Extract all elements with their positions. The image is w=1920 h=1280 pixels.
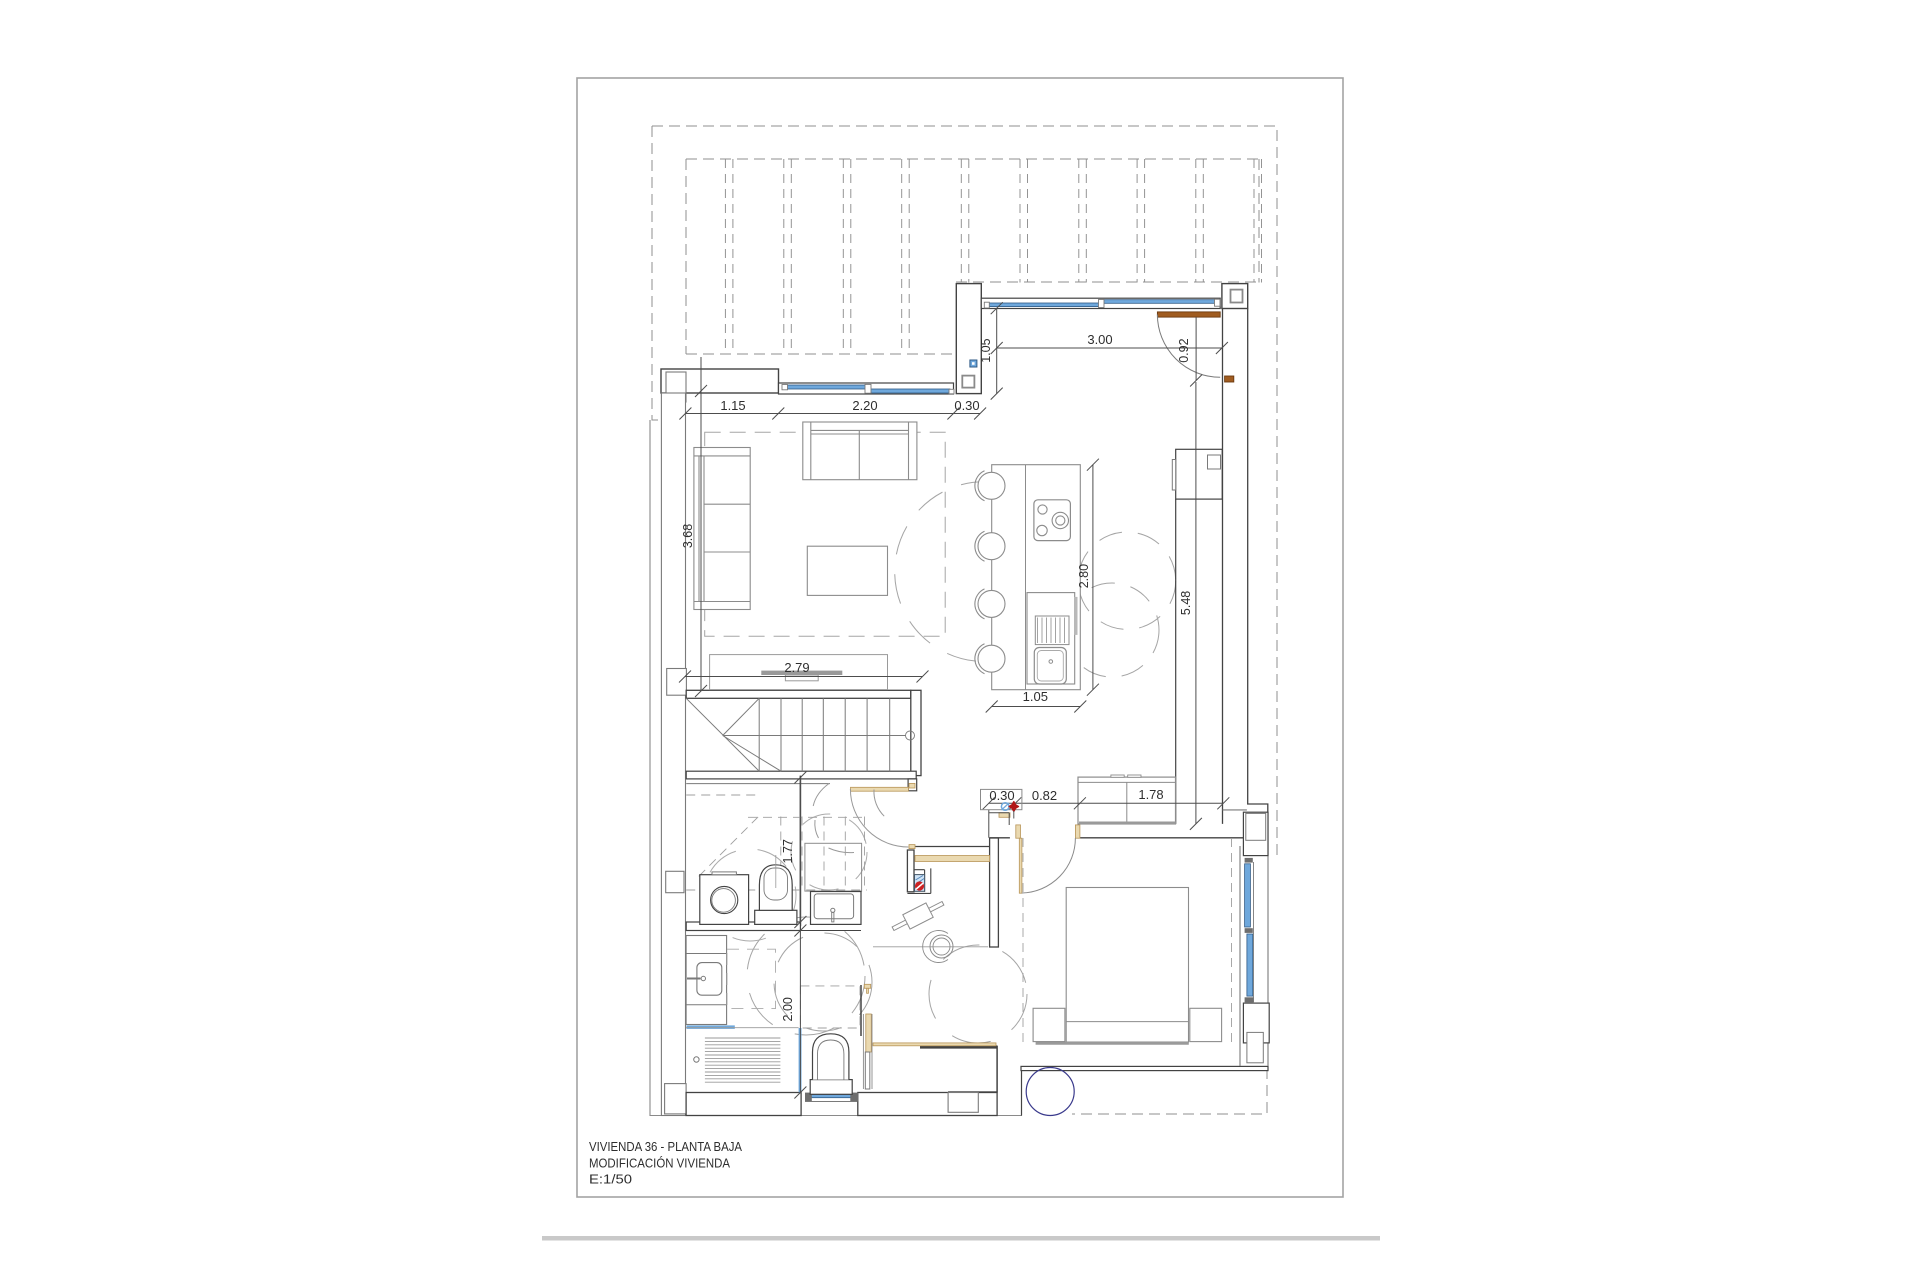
svg-text:0.82: 0.82 — [1032, 788, 1057, 803]
svg-text:1.05: 1.05 — [1023, 689, 1048, 704]
svg-text:2.79: 2.79 — [784, 660, 809, 675]
svg-text:1.05: 1.05 — [979, 338, 993, 362]
svg-text:0.30: 0.30 — [954, 398, 979, 413]
svg-text:1.77: 1.77 — [781, 839, 795, 863]
svg-text:2.80: 2.80 — [1077, 564, 1091, 588]
svg-text:2.20: 2.20 — [852, 398, 877, 413]
svg-text:1.78: 1.78 — [1138, 787, 1163, 802]
svg-text:3.00: 3.00 — [1087, 332, 1112, 347]
svg-text:5.48: 5.48 — [1179, 591, 1193, 615]
svg-text:1.15: 1.15 — [720, 398, 745, 413]
svg-text:MODIFICACIÓN VIVIENDA: MODIFICACIÓN VIVIENDA — [589, 1156, 730, 1171]
svg-text:3.68: 3.68 — [681, 524, 695, 548]
svg-text:0.30: 0.30 — [989, 788, 1014, 803]
svg-text:VIVIENDA 36 - PLANTA BAJA: VIVIENDA 36 - PLANTA BAJA — [589, 1139, 742, 1154]
svg-text:2.00: 2.00 — [781, 997, 795, 1021]
svg-text:0.92: 0.92 — [1177, 338, 1191, 362]
svg-text:E:1/50: E:1/50 — [589, 1172, 632, 1187]
